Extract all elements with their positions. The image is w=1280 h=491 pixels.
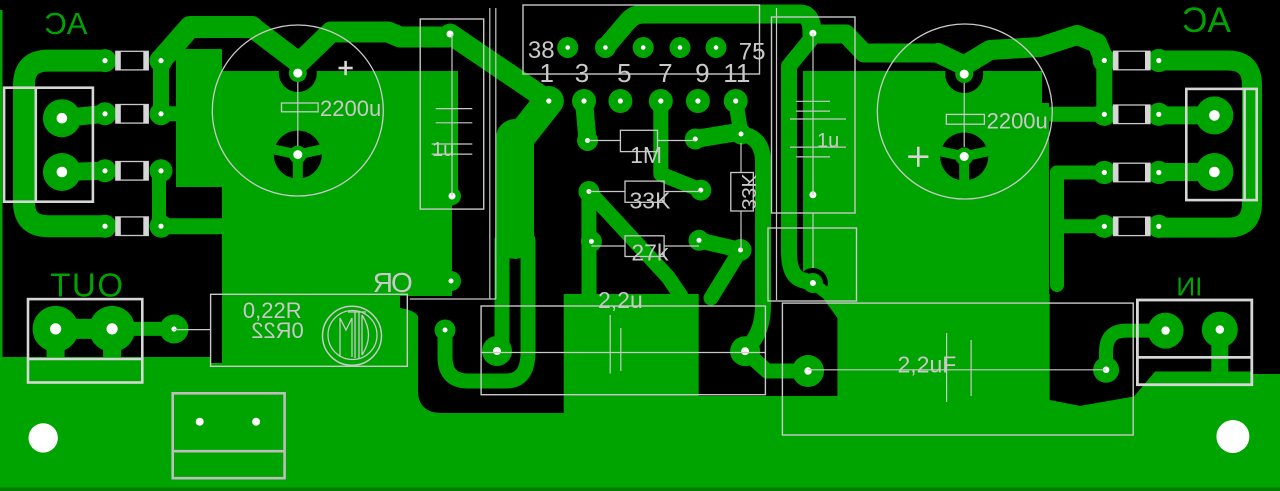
svg-text:0R22: 0R22 [251, 318, 304, 343]
svg-text:2,2u: 2,2u [598, 287, 643, 313]
svg-text:33K: 33K [630, 188, 672, 214]
svg-text:33K: 33K [737, 174, 759, 210]
svg-text:AC: AC [44, 6, 87, 41]
svg-text:11: 11 [723, 58, 750, 88]
svg-text:9: 9 [695, 58, 709, 88]
svg-text:2200u: 2200u [987, 109, 1048, 134]
svg-text:IN: IN [1176, 271, 1202, 301]
svg-text:3: 3 [575, 58, 589, 88]
svg-text:1: 1 [539, 58, 553, 88]
svg-text:2200u: 2200u [320, 96, 381, 121]
svg-text:2,2uF: 2,2uF [898, 352, 957, 378]
svg-text:7: 7 [658, 58, 672, 88]
svg-text:1u: 1u [817, 130, 839, 152]
svg-text:OUT: OUT [49, 267, 123, 304]
svg-text:1M: 1M [630, 142, 662, 168]
svg-text:OR: OR [374, 267, 413, 298]
svg-text:AC: AC [1182, 1, 1231, 40]
svg-text:1u: 1u [432, 139, 454, 161]
svg-text:27k: 27k [631, 240, 669, 266]
svg-text:5: 5 [617, 58, 631, 88]
